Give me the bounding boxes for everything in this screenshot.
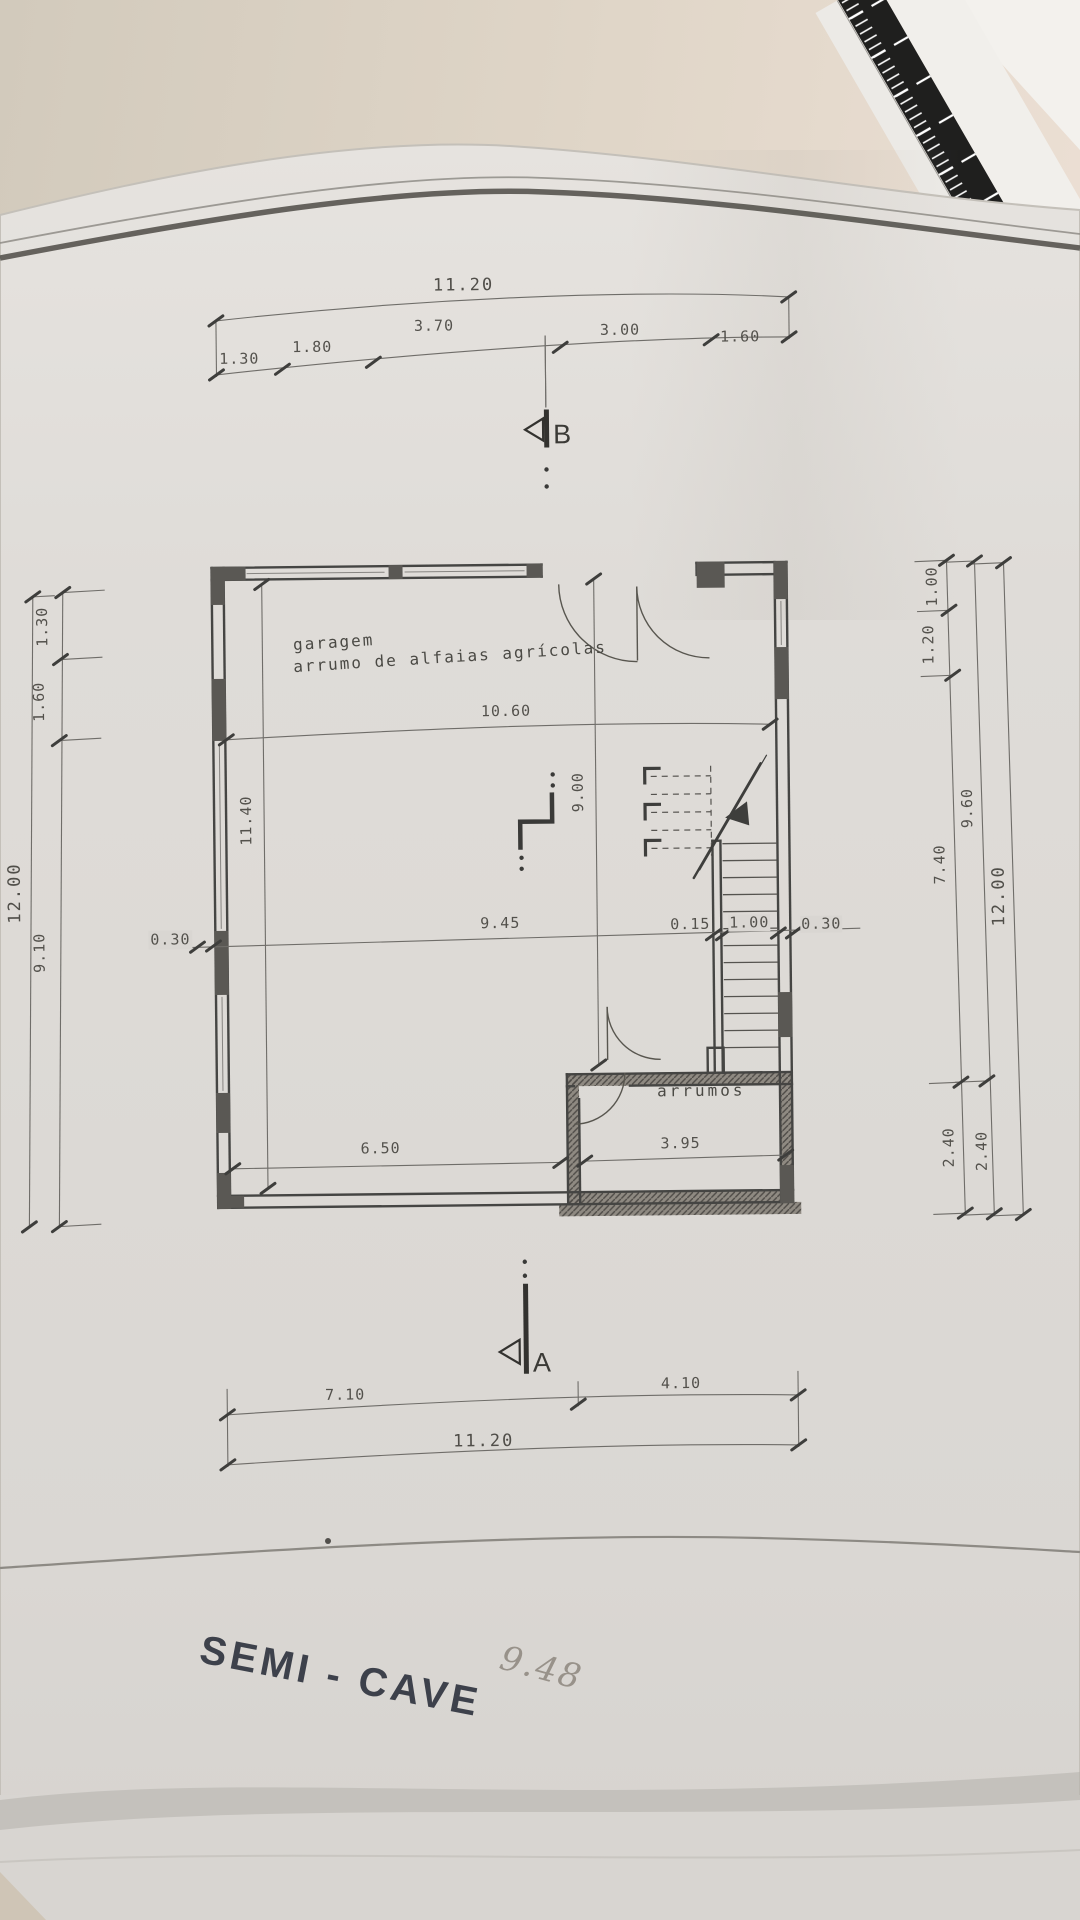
- dim-right-4: 2.40: [939, 1127, 957, 1167]
- dim-top-3: 3.70: [414, 316, 454, 334]
- dim-left-total: 12.00: [5, 862, 26, 923]
- dim-right-2: 1.20: [919, 624, 937, 664]
- dim-right-3: 7.40: [930, 844, 948, 884]
- dim-mid-span: 9.45: [480, 914, 520, 932]
- floor-plan-sheet: B A: [0, 0, 1080, 1920]
- dim-room-width: 10.60: [481, 702, 531, 721]
- paper-warp-shading: [630, 150, 960, 620]
- dim-wall-left: 0.30: [150, 930, 190, 948]
- dim-bottom-total: 11.20: [453, 1431, 514, 1452]
- dim-left-1: 1.30: [33, 607, 51, 647]
- ink-dot: [325, 1538, 331, 1544]
- dim-bottom-1: 7.10: [325, 1385, 365, 1403]
- section-label-a: A: [533, 1347, 551, 1377]
- dim-garage-bottom: 6.50: [360, 1139, 400, 1157]
- dim-top-total: 11.20: [433, 275, 494, 296]
- room-label-storage: arrumos: [657, 1080, 746, 1100]
- dim-top-2: 1.80: [292, 338, 332, 356]
- dim-right-mid-1: 9.60: [958, 788, 976, 828]
- dim-left-3: 9.10: [30, 933, 48, 973]
- dim-room-depth-left: 11.40: [237, 795, 256, 845]
- dim-stair-width: 1.00: [729, 913, 769, 931]
- dim-bottom-2: 4.10: [661, 1374, 701, 1392]
- dim-top-1: 1.30: [219, 349, 259, 367]
- dim-room-depth: 9.00: [569, 772, 587, 812]
- dim-left-2: 1.60: [30, 682, 48, 722]
- dim-right-1: 1.00: [923, 566, 941, 606]
- dim-right-total: 12.00: [989, 865, 1010, 926]
- dim-right-mid-2: 2.40: [972, 1131, 990, 1171]
- dim-top-4: 3.00: [600, 321, 640, 339]
- dim-wall-right: 0.30: [801, 914, 841, 932]
- dim-top-5: 1.60: [720, 327, 760, 345]
- photo-of-floor-plan: B A: [0, 0, 1080, 1920]
- dim-stair-partition: 0.15: [670, 915, 710, 933]
- section-label-b: B: [553, 419, 571, 449]
- dim-storage-width: 3.95: [660, 1134, 700, 1152]
